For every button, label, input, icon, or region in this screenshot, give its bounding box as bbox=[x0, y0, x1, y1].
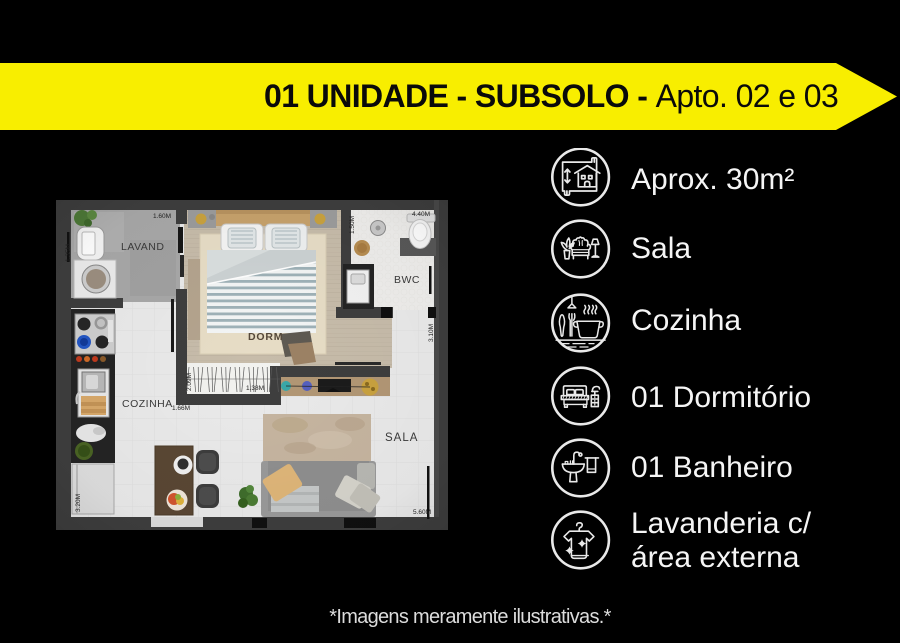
svg-text:01 UNIDADE - SUBSOLO - Apto. 0: 01 UNIDADE - SUBSOLO - Apto. 02 e 03 bbox=[264, 78, 838, 114]
svg-text:4.40M: 4.40M bbox=[412, 211, 430, 218]
svg-text:1.66M: 1.66M bbox=[172, 405, 190, 412]
svg-text:1.38M: 1.38M bbox=[246, 385, 264, 392]
svg-text:1.50M: 1.50M bbox=[349, 216, 356, 234]
svg-text:5.60M: 5.60M bbox=[413, 509, 431, 516]
svg-text:2.09M: 2.09M bbox=[186, 373, 193, 391]
svg-text:3.10M: 3.10M bbox=[428, 324, 435, 342]
svg-text:3.20M: 3.20M bbox=[75, 494, 82, 512]
svg-text:1.60M: 1.60M bbox=[153, 213, 171, 220]
svg-text:1.35M: 1.35M bbox=[65, 244, 72, 262]
